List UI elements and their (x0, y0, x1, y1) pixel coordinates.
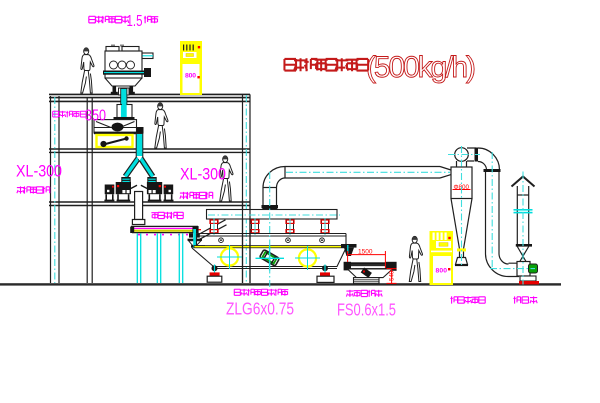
svg-text:350: 350 (85, 108, 106, 125)
svg-text:XL-300: XL-300 (180, 166, 226, 184)
svg-text:FS0.6x1.5: FS0.6x1.5 (337, 300, 396, 320)
svg-text:800: 800 (436, 268, 448, 275)
svg-text:ZLG6x0.75: ZLG6x0.75 (226, 299, 294, 319)
svg-text:800: 800 (185, 73, 196, 80)
svg-text:540: 540 (389, 270, 396, 281)
svg-text:1.5: 1.5 (127, 13, 143, 30)
svg-text:(500kg/h): (500kg/h) (366, 51, 476, 84)
svg-text:XL-300: XL-300 (16, 163, 62, 181)
svg-text:1500: 1500 (358, 248, 373, 255)
